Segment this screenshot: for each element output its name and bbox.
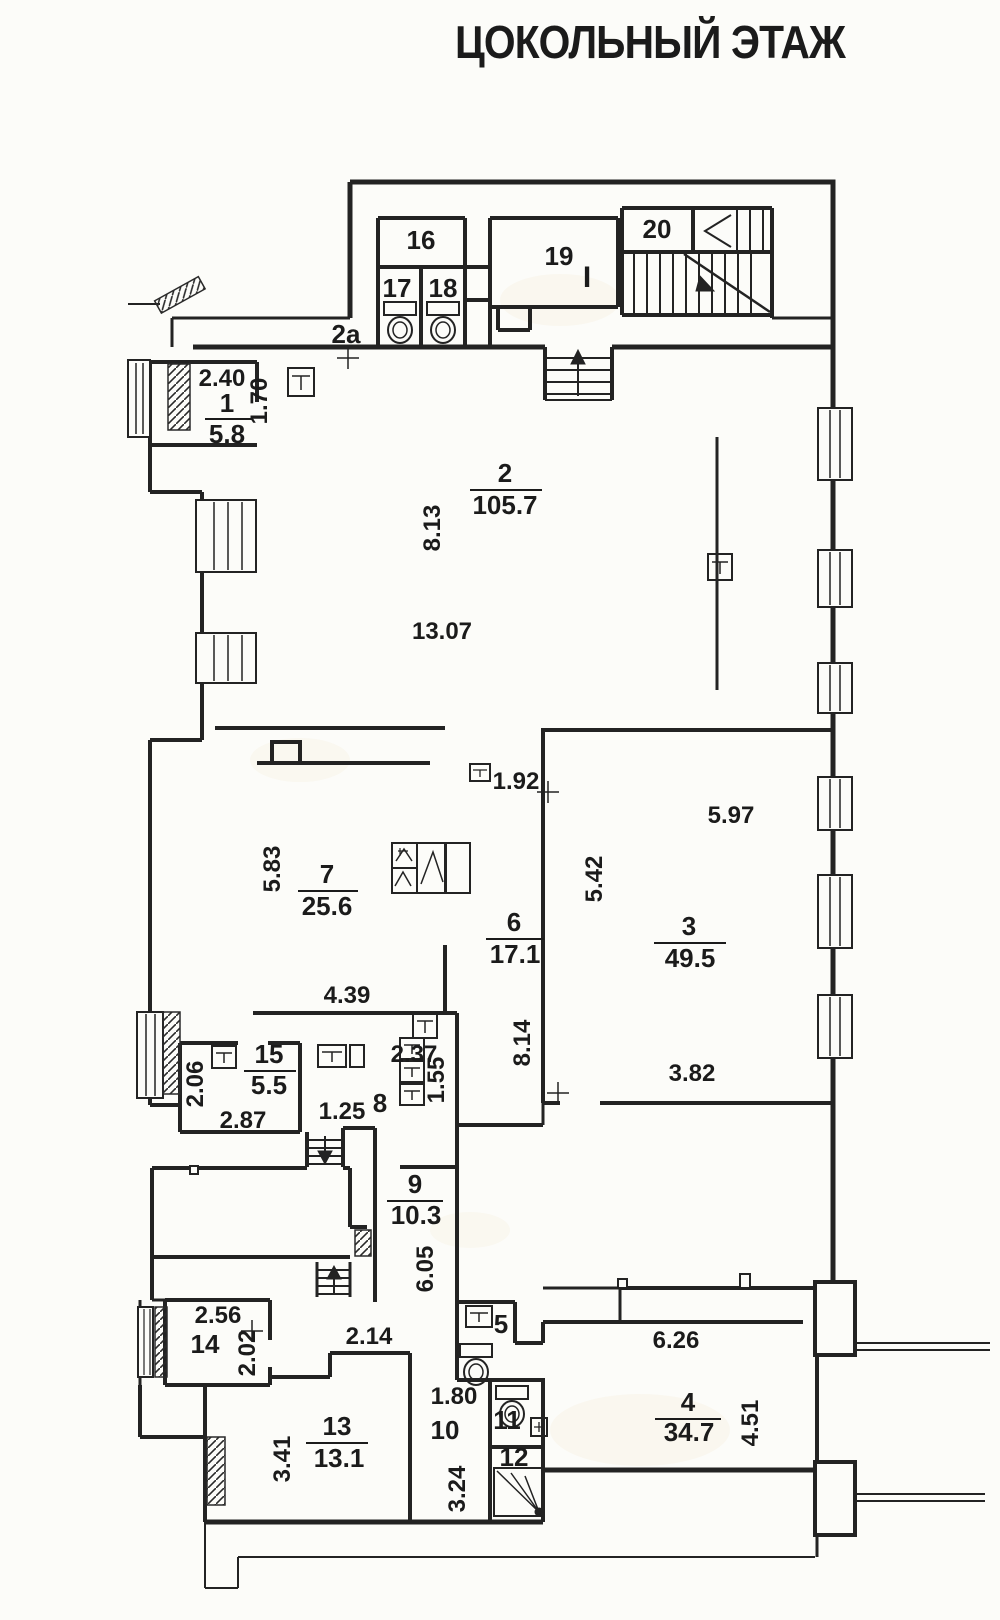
wall-bump: [740, 1274, 750, 1288]
room-label-2a: 2a: [332, 319, 361, 349]
room-area-7: 25.6: [302, 891, 353, 921]
dim-5-97: 5.97: [708, 802, 755, 829]
dim-13-07: 13.07: [412, 618, 472, 645]
floor-plan: ЦОКОЛЬНЫЙ ЭТАЖ: [0, 0, 1000, 1620]
dim-8-13: 8.13: [419, 505, 446, 552]
room-num-15: 15: [255, 1039, 284, 1069]
room-area-3: 49.5: [665, 943, 716, 973]
room-num-2: 2: [498, 458, 512, 488]
floor-plan-page: ЦОКОЛЬНЫЙ ЭТАЖ: [0, 0, 1000, 1620]
dim-2-06: 2.06: [182, 1061, 209, 1108]
hatch-wall: [207, 1437, 225, 1505]
room-area-2: 105.7: [472, 490, 537, 520]
room-label-18: 18: [429, 273, 458, 303]
room-area-6: 17.1: [490, 939, 541, 969]
dim-3-41: 3.41: [269, 1436, 296, 1483]
room-num-4: 4: [681, 1387, 696, 1417]
dim-2-14: 2.14: [346, 1323, 393, 1350]
dim-1-25: 1.25: [319, 1098, 366, 1125]
dim-5-83: 5.83: [259, 846, 286, 893]
room-area-4: 34.7: [664, 1417, 715, 1447]
dim-8-14: 8.14: [509, 1019, 536, 1066]
dim-5-42: 5.42: [581, 856, 608, 903]
room-label-16: 16: [407, 225, 436, 255]
wall-bump: [618, 1279, 627, 1288]
dim-4-51: 4.51: [737, 1400, 764, 1447]
room-label-10: 10: [431, 1415, 460, 1445]
room-area-9: 10.3: [391, 1200, 442, 1230]
dim-2-87: 2.87: [220, 1107, 267, 1134]
hatch-wall: [155, 1307, 167, 1377]
dim-1-55: 1.55: [423, 1057, 450, 1104]
room-label-17: 17: [383, 273, 412, 303]
dim-3-82: 3.82: [669, 1060, 716, 1087]
dim-6-26: 6.26: [653, 1327, 700, 1354]
room-num-9: 9: [408, 1169, 422, 1199]
room-area-15: 5.5: [251, 1070, 287, 1100]
room-num-7: 7: [320, 859, 334, 889]
room-label-19: 19: [545, 241, 574, 271]
dim-6-05: 6.05: [412, 1246, 439, 1293]
room-num-6: 6: [507, 907, 521, 937]
wall-bump: [190, 1166, 198, 1174]
room-num-13: 13: [323, 1411, 352, 1441]
dim-1-70: 1.70: [246, 378, 273, 425]
pilaster: [815, 1282, 855, 1355]
hatch-wall: [163, 1012, 180, 1094]
dim-1-92: 1.92: [493, 768, 540, 795]
room-num-1: 1: [220, 388, 234, 418]
hatch-wall: [355, 1230, 371, 1256]
pilaster: [815, 1462, 855, 1535]
room-num-3: 3: [682, 911, 696, 941]
hatch-wall: [168, 364, 190, 430]
dim-2-02: 2.02: [234, 1330, 261, 1377]
dim-3-24: 3.24: [444, 1465, 471, 1512]
dim-2-56: 2.56: [195, 1302, 242, 1329]
room-label-5: 5: [494, 1309, 508, 1339]
section-marker: I: [583, 261, 591, 294]
room-area-13: 13.1: [314, 1443, 365, 1473]
dim-1-80: 1.80: [431, 1383, 478, 1410]
room-label-14: 14: [191, 1329, 220, 1359]
dim-4-39: 4.39: [324, 982, 371, 1009]
room-area-1: 5.8: [209, 419, 245, 449]
room-label-12: 12: [500, 1442, 529, 1472]
page-title: ЦОКОЛЬНЫЙ ЭТАЖ: [455, 16, 846, 68]
room-label-11: 11: [493, 1405, 521, 1435]
room-label-20: 20: [643, 214, 672, 244]
room-label-8: 8: [373, 1088, 387, 1118]
